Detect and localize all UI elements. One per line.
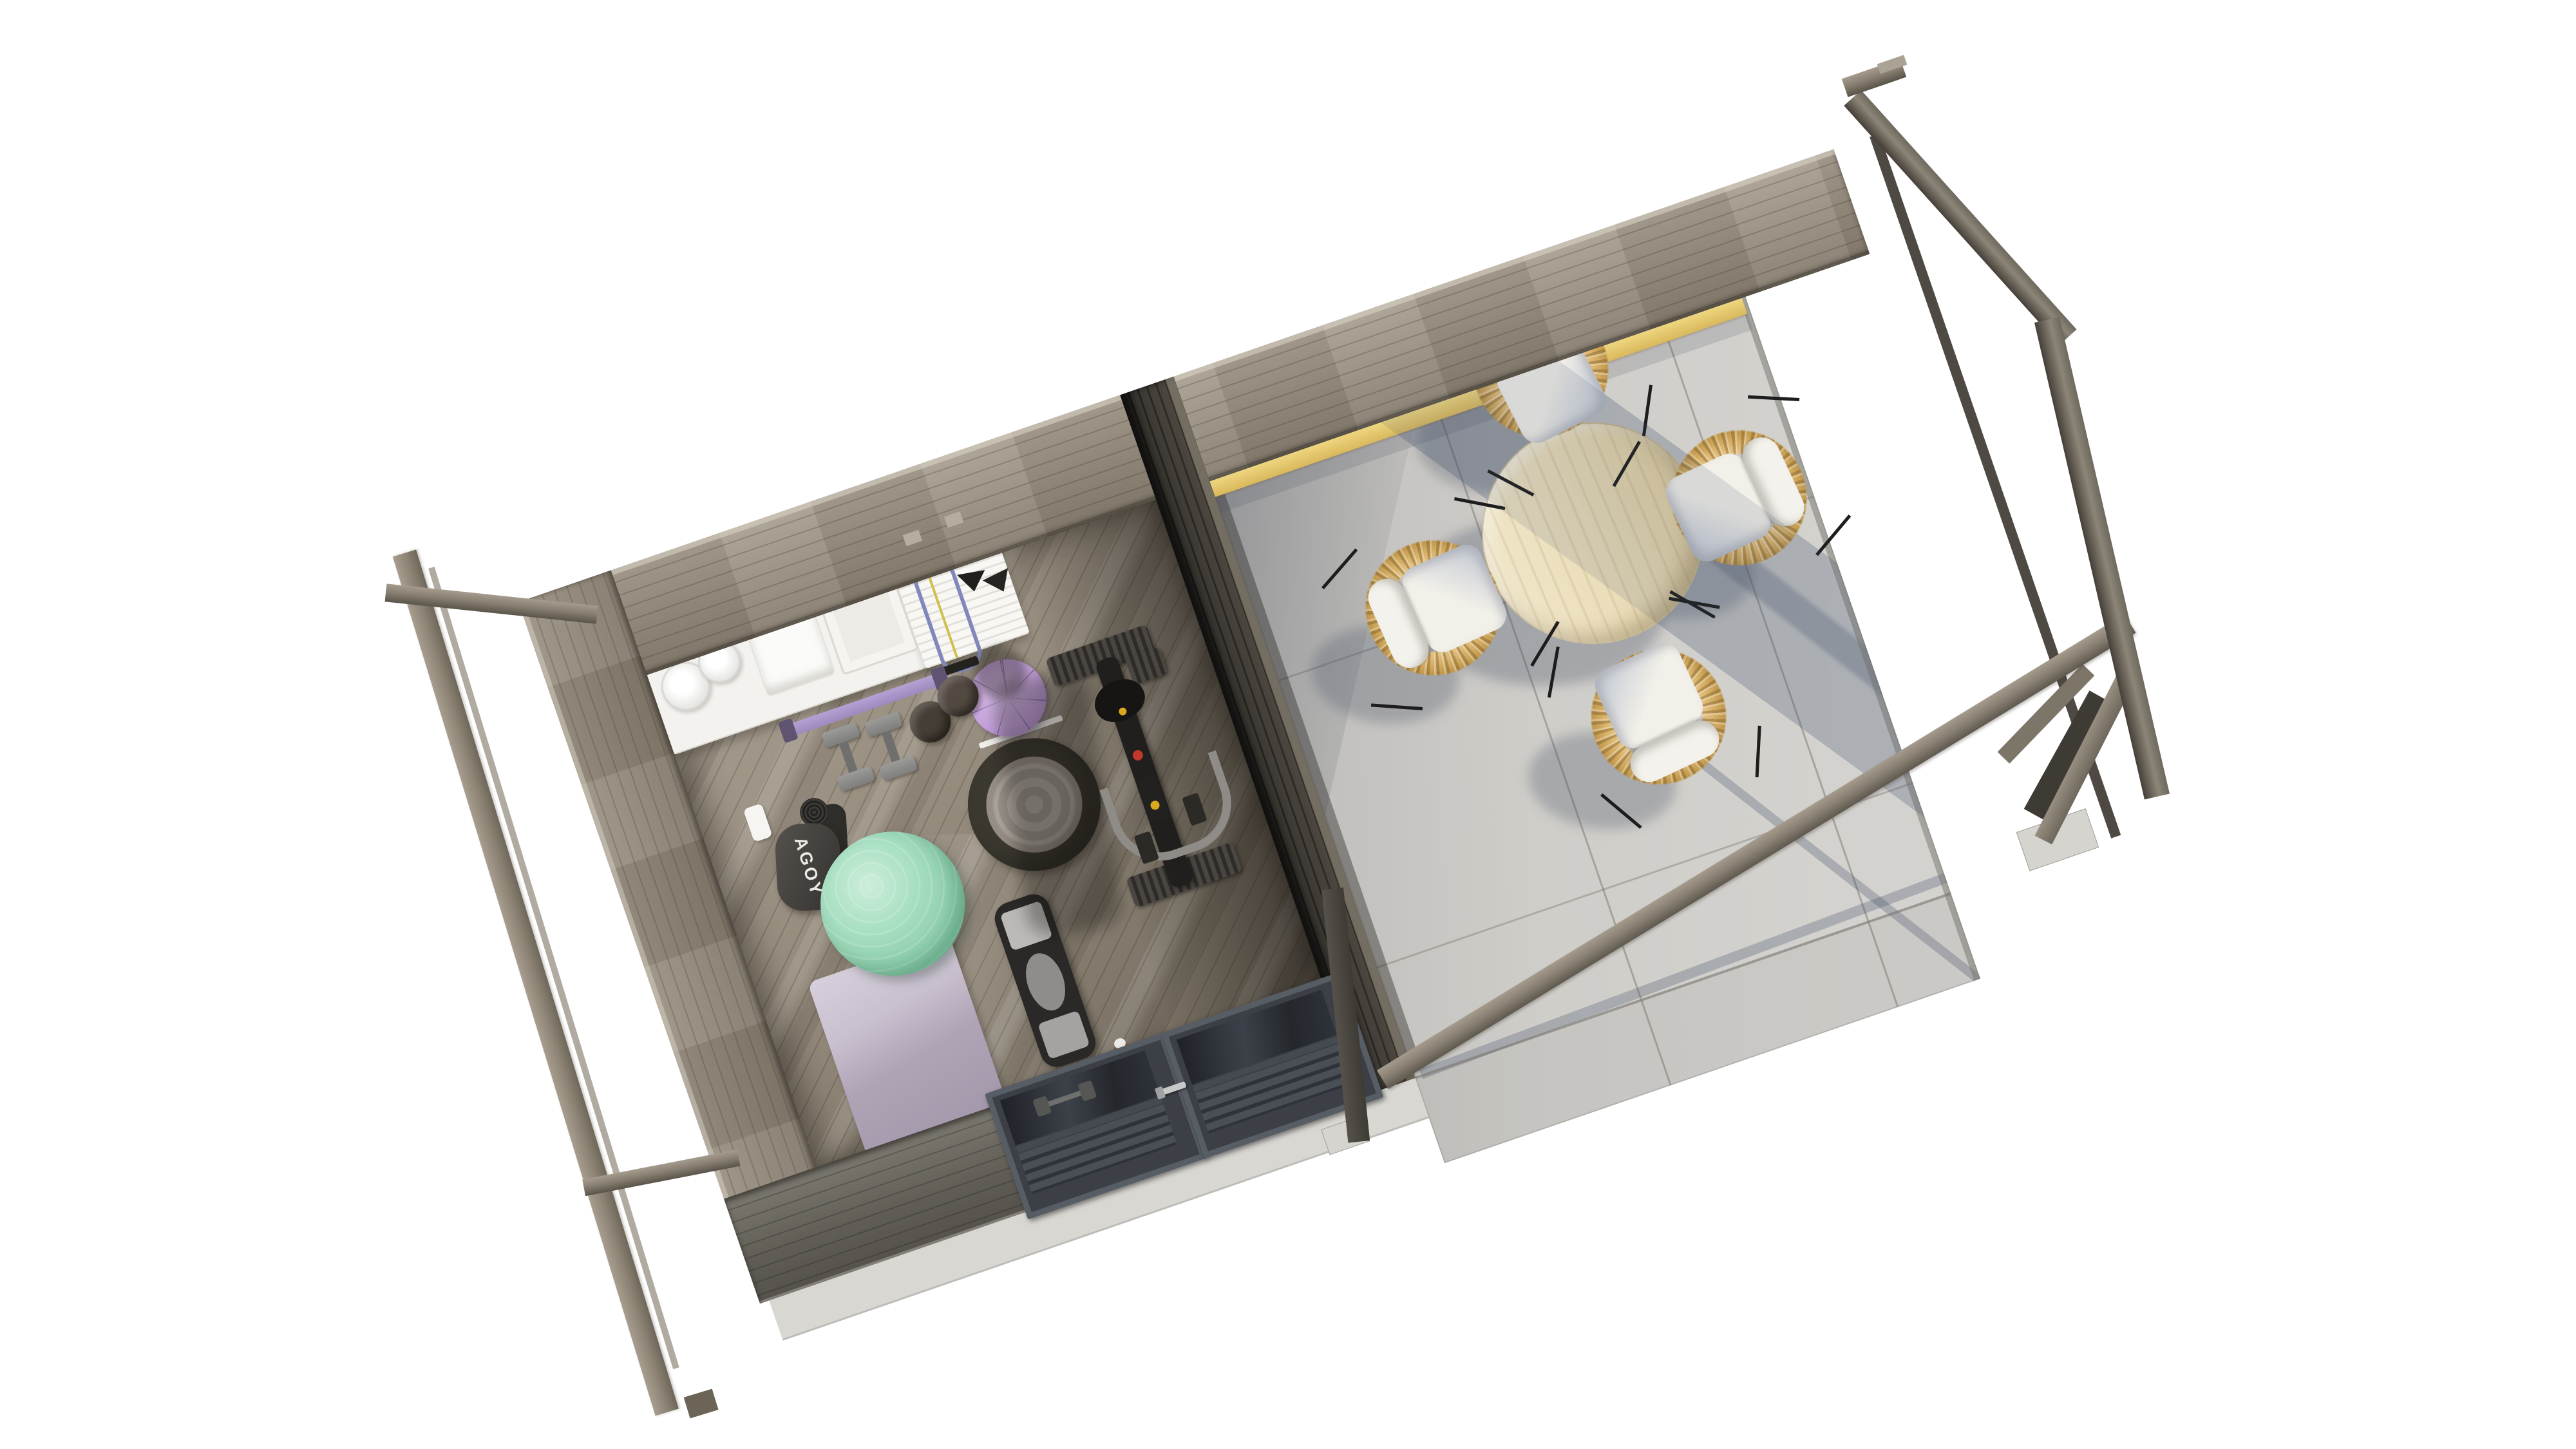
dumbbell-bar <box>839 741 858 773</box>
dumbbell-bar <box>882 730 900 762</box>
render-canvas: AGOY <box>0 0 2576 1449</box>
board-pad-bottom <box>1037 1010 1090 1059</box>
chair-leg <box>1600 793 1642 829</box>
board-oval <box>1019 948 1072 1016</box>
cabin-building: AGOY <box>518 133 2121 1303</box>
chair-leg <box>1642 384 1653 436</box>
chair-leg <box>1454 497 1505 510</box>
fascia-foot <box>684 1388 719 1418</box>
chair-leg <box>1613 440 1641 487</box>
chair-leg <box>1748 395 1799 401</box>
chair-leg <box>1548 647 1560 698</box>
chair-leg <box>1321 548 1358 589</box>
slab-apron <box>1416 895 1980 1163</box>
chair-leg <box>1815 515 1851 556</box>
dumbbell-plate-glass <box>1032 1095 1052 1117</box>
dumbbell-plate-glass <box>1077 1080 1097 1102</box>
